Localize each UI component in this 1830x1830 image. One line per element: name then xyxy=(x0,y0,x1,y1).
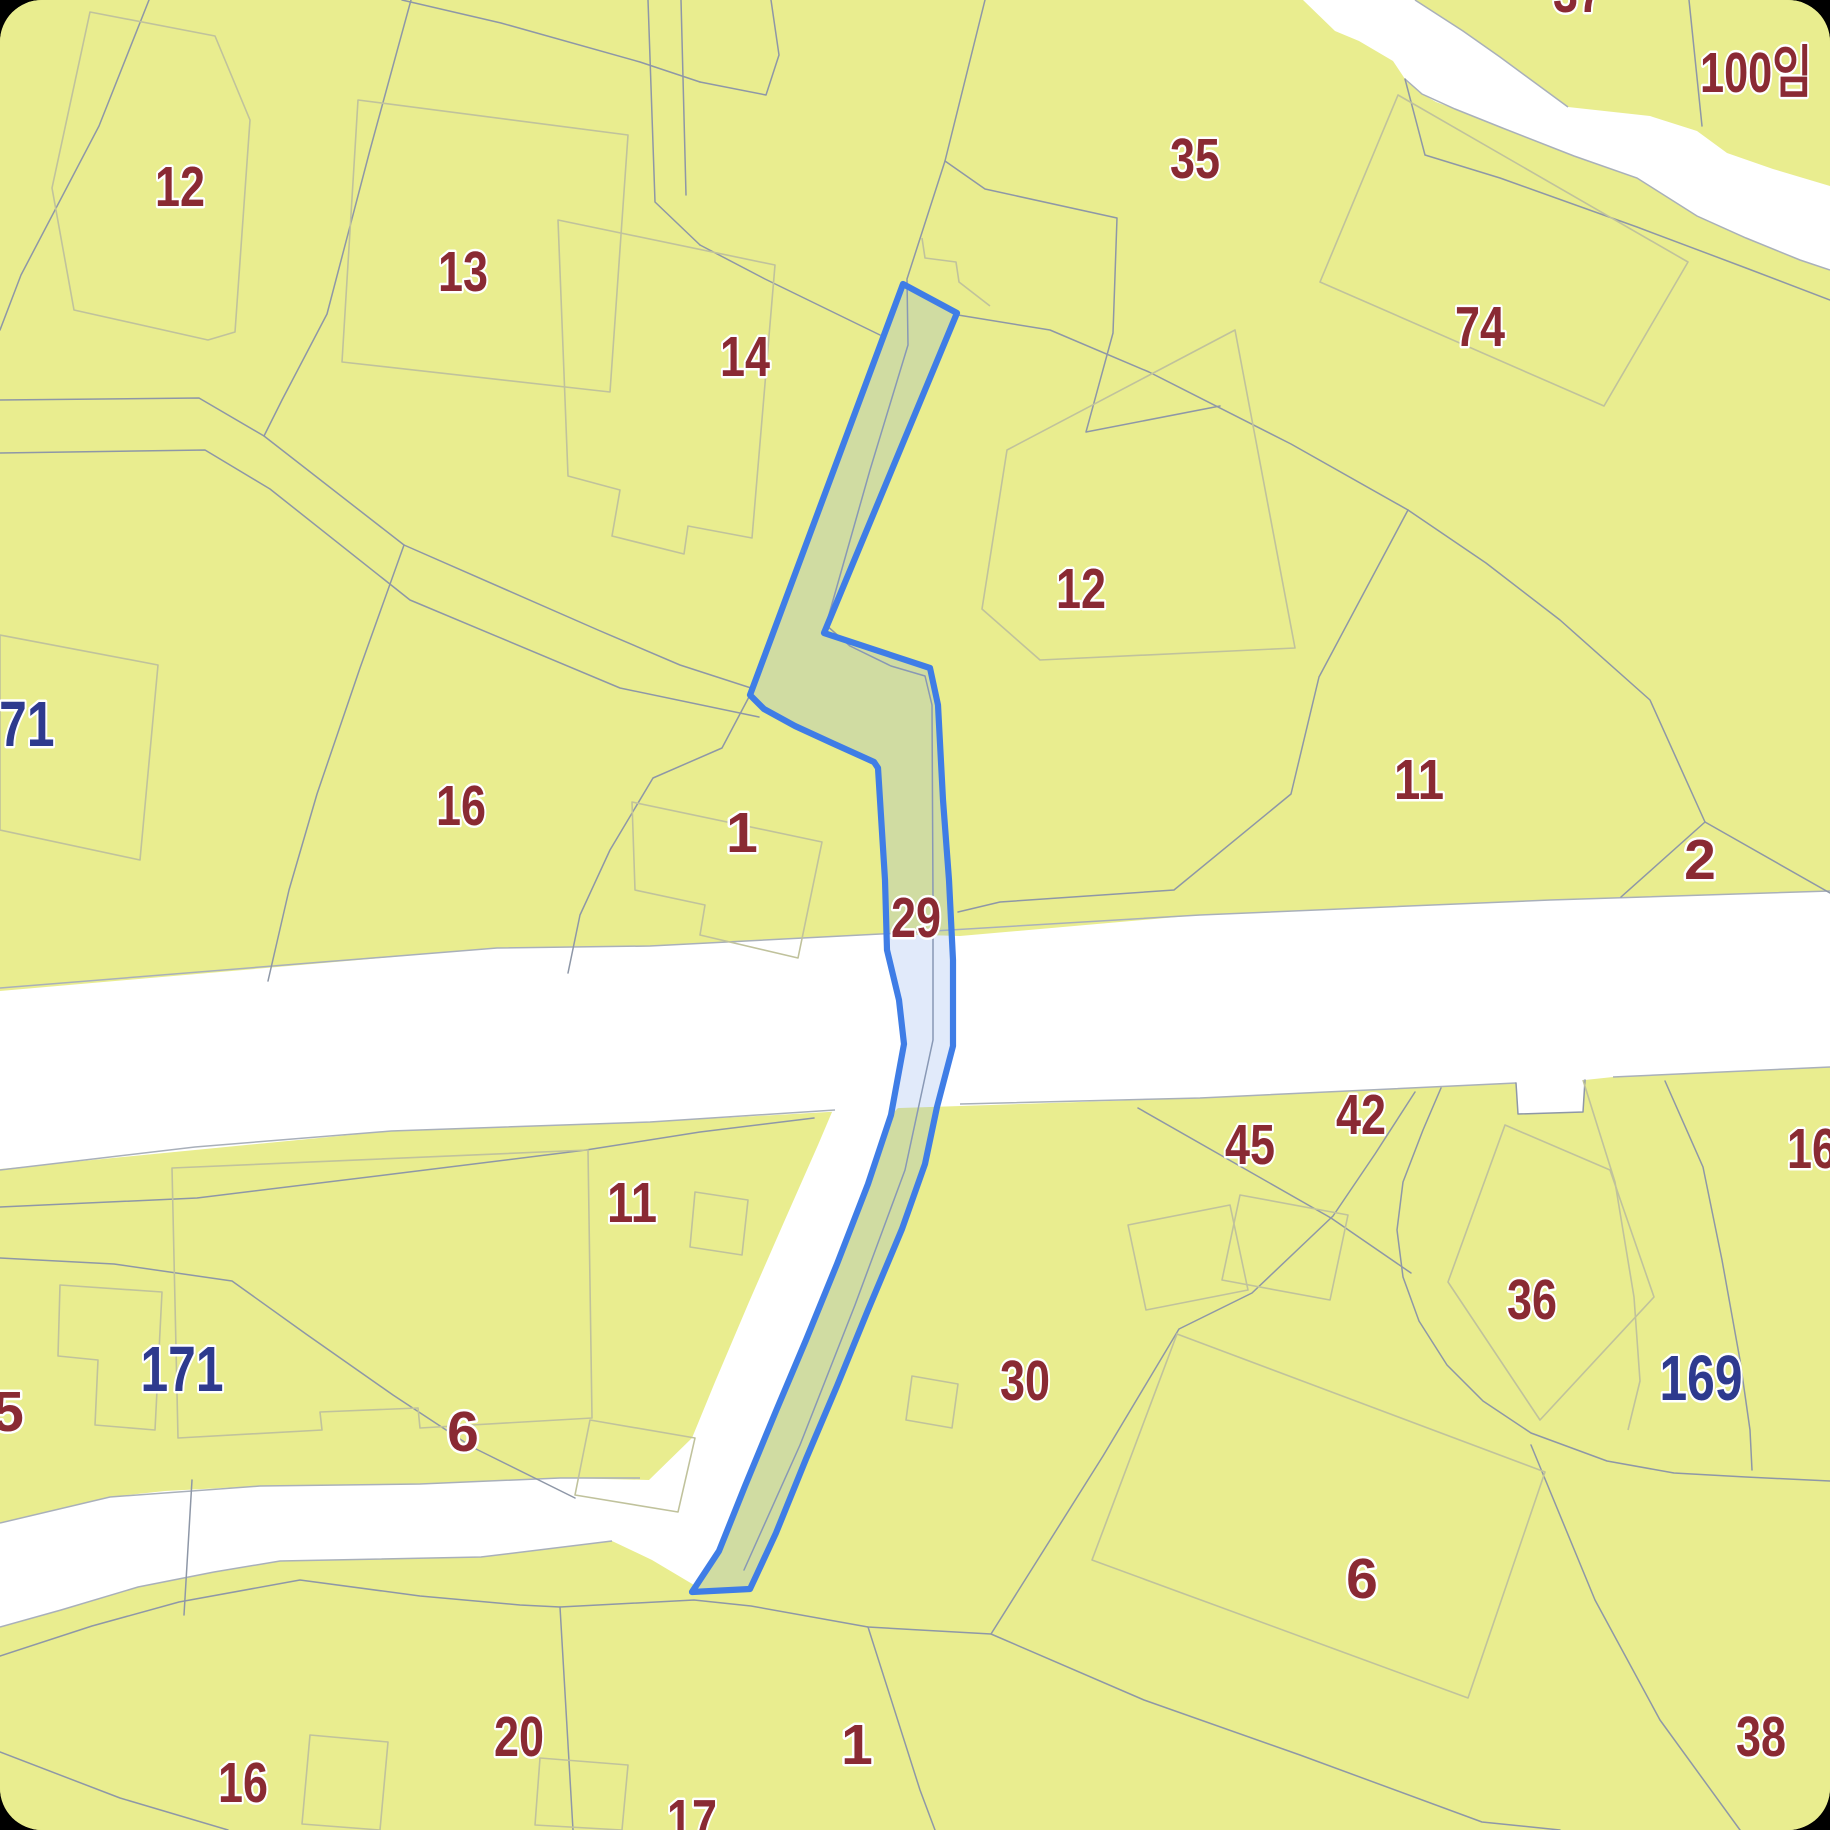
svg-text:171: 171 xyxy=(0,688,55,760)
svg-text:1: 1 xyxy=(841,1713,873,1777)
svg-text:12: 12 xyxy=(155,155,205,219)
svg-text:169: 169 xyxy=(1660,1342,1743,1414)
svg-text:30: 30 xyxy=(1000,1349,1050,1413)
svg-text:12: 12 xyxy=(1056,557,1106,621)
svg-text:2: 2 xyxy=(1684,828,1716,892)
svg-text:11: 11 xyxy=(607,1171,657,1235)
svg-text:16: 16 xyxy=(218,1751,268,1815)
svg-text:13: 13 xyxy=(438,240,488,304)
svg-text:171: 171 xyxy=(141,1333,224,1405)
svg-text:1: 1 xyxy=(726,801,758,865)
svg-text:20: 20 xyxy=(494,1705,544,1769)
svg-text:74: 74 xyxy=(1455,295,1505,359)
svg-text:16: 16 xyxy=(436,774,486,838)
svg-text:16: 16 xyxy=(1787,1117,1830,1181)
svg-text:14: 14 xyxy=(720,325,770,389)
svg-text:35: 35 xyxy=(1170,127,1220,191)
svg-text:17: 17 xyxy=(667,1788,717,1830)
svg-text:42: 42 xyxy=(1336,1083,1386,1147)
svg-text:37: 37 xyxy=(1553,0,1603,25)
svg-text:11: 11 xyxy=(1394,748,1444,812)
svg-text:100임: 100임 xyxy=(1700,41,1812,105)
svg-text:45: 45 xyxy=(1225,1113,1275,1177)
svg-text:6: 6 xyxy=(1346,1547,1378,1611)
svg-text:5: 5 xyxy=(0,1380,24,1444)
svg-text:6: 6 xyxy=(447,1400,479,1464)
svg-text:29: 29 xyxy=(891,886,941,950)
svg-text:36: 36 xyxy=(1507,1268,1557,1332)
svg-text:38: 38 xyxy=(1736,1705,1786,1769)
